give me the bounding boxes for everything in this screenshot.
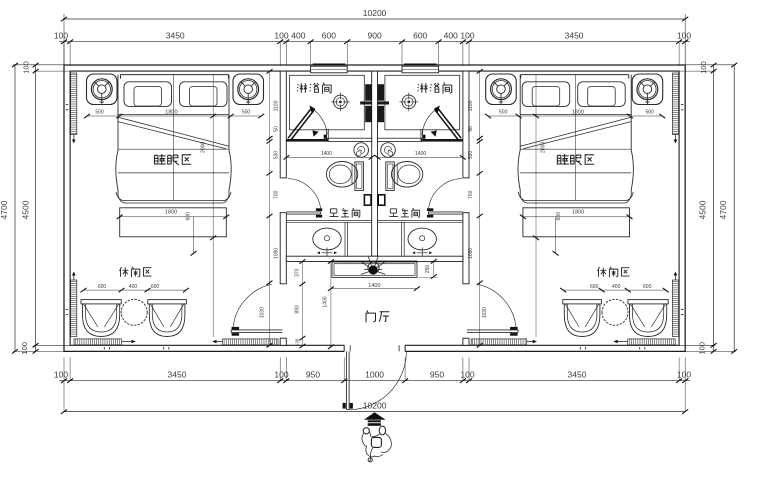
svg-text:500: 500 (95, 109, 104, 115)
svg-text:250: 250 (425, 265, 431, 274)
svg-text:600: 600 (322, 31, 336, 41)
svg-text:1030: 1030 (482, 307, 488, 318)
svg-text:500: 500 (499, 109, 508, 115)
svg-text:3450: 3450 (166, 31, 185, 41)
svg-text:4700: 4700 (718, 200, 728, 219)
svg-text:950: 950 (430, 370, 444, 380)
svg-text:3450: 3450 (565, 31, 584, 41)
svg-text:400: 400 (291, 31, 305, 41)
svg-text:4700: 4700 (0, 200, 9, 219)
svg-text:10200: 10200 (363, 8, 387, 18)
svg-text:600: 600 (98, 284, 107, 290)
svg-text:100: 100 (677, 370, 691, 380)
svg-text:950: 950 (306, 370, 320, 380)
svg-text:1100: 1100 (468, 100, 474, 111)
svg-text:400: 400 (129, 284, 138, 290)
svg-text:1100: 1100 (273, 100, 279, 111)
svg-text:530: 530 (273, 151, 279, 160)
svg-text:400: 400 (612, 284, 621, 290)
svg-text:1090: 1090 (273, 248, 279, 259)
svg-text:700: 700 (468, 190, 474, 199)
svg-text:2000: 2000 (201, 142, 207, 153)
svg-text:100: 100 (677, 31, 691, 41)
svg-text:100: 100 (460, 370, 474, 380)
svg-text:500: 500 (242, 109, 251, 115)
svg-text:600: 600 (643, 284, 652, 290)
svg-text:100: 100 (21, 61, 30, 74)
svg-text:1800: 1800 (165, 109, 177, 115)
svg-text:100: 100 (460, 31, 474, 41)
svg-text:400: 400 (444, 31, 458, 41)
svg-text:100: 100 (698, 342, 707, 355)
svg-text:100: 100 (54, 31, 68, 41)
svg-text:700: 700 (273, 190, 279, 199)
svg-text:1800: 1800 (572, 210, 584, 216)
svg-text:100: 100 (274, 31, 288, 41)
svg-text:370: 370 (295, 268, 301, 277)
svg-text:1000: 1000 (365, 370, 384, 380)
svg-text:130: 130 (295, 338, 300, 346)
svg-text:1400: 1400 (368, 283, 380, 289)
svg-text:100: 100 (699, 61, 708, 74)
svg-text:900: 900 (368, 31, 382, 41)
svg-text:600: 600 (151, 284, 160, 290)
svg-text:3450: 3450 (168, 370, 187, 380)
svg-text:1800: 1800 (572, 109, 584, 115)
svg-text:600: 600 (556, 212, 562, 221)
svg-text:893: 893 (295, 305, 301, 314)
svg-text:4500: 4500 (698, 200, 708, 219)
svg-text:100: 100 (274, 370, 288, 380)
svg-text:3450: 3450 (568, 370, 587, 380)
svg-text:1400: 1400 (323, 296, 329, 307)
svg-text:1090: 1090 (468, 248, 474, 259)
svg-text:50: 50 (468, 126, 474, 132)
svg-text:2000: 2000 (541, 142, 547, 153)
svg-text:600: 600 (590, 284, 599, 290)
svg-text:1800: 1800 (165, 210, 177, 216)
svg-text:10200: 10200 (363, 400, 387, 410)
svg-text:100: 100 (54, 370, 68, 380)
svg-text:600: 600 (185, 212, 191, 221)
svg-text:100: 100 (20, 342, 29, 355)
svg-text:4500: 4500 (20, 200, 30, 219)
svg-text:530: 530 (468, 151, 474, 160)
svg-text:1400: 1400 (321, 151, 332, 157)
svg-text:500: 500 (646, 109, 655, 115)
svg-text:600: 600 (413, 31, 427, 41)
svg-text:1030: 1030 (260, 307, 266, 318)
svg-text:50: 50 (273, 126, 279, 132)
svg-text:1400: 1400 (415, 151, 426, 157)
